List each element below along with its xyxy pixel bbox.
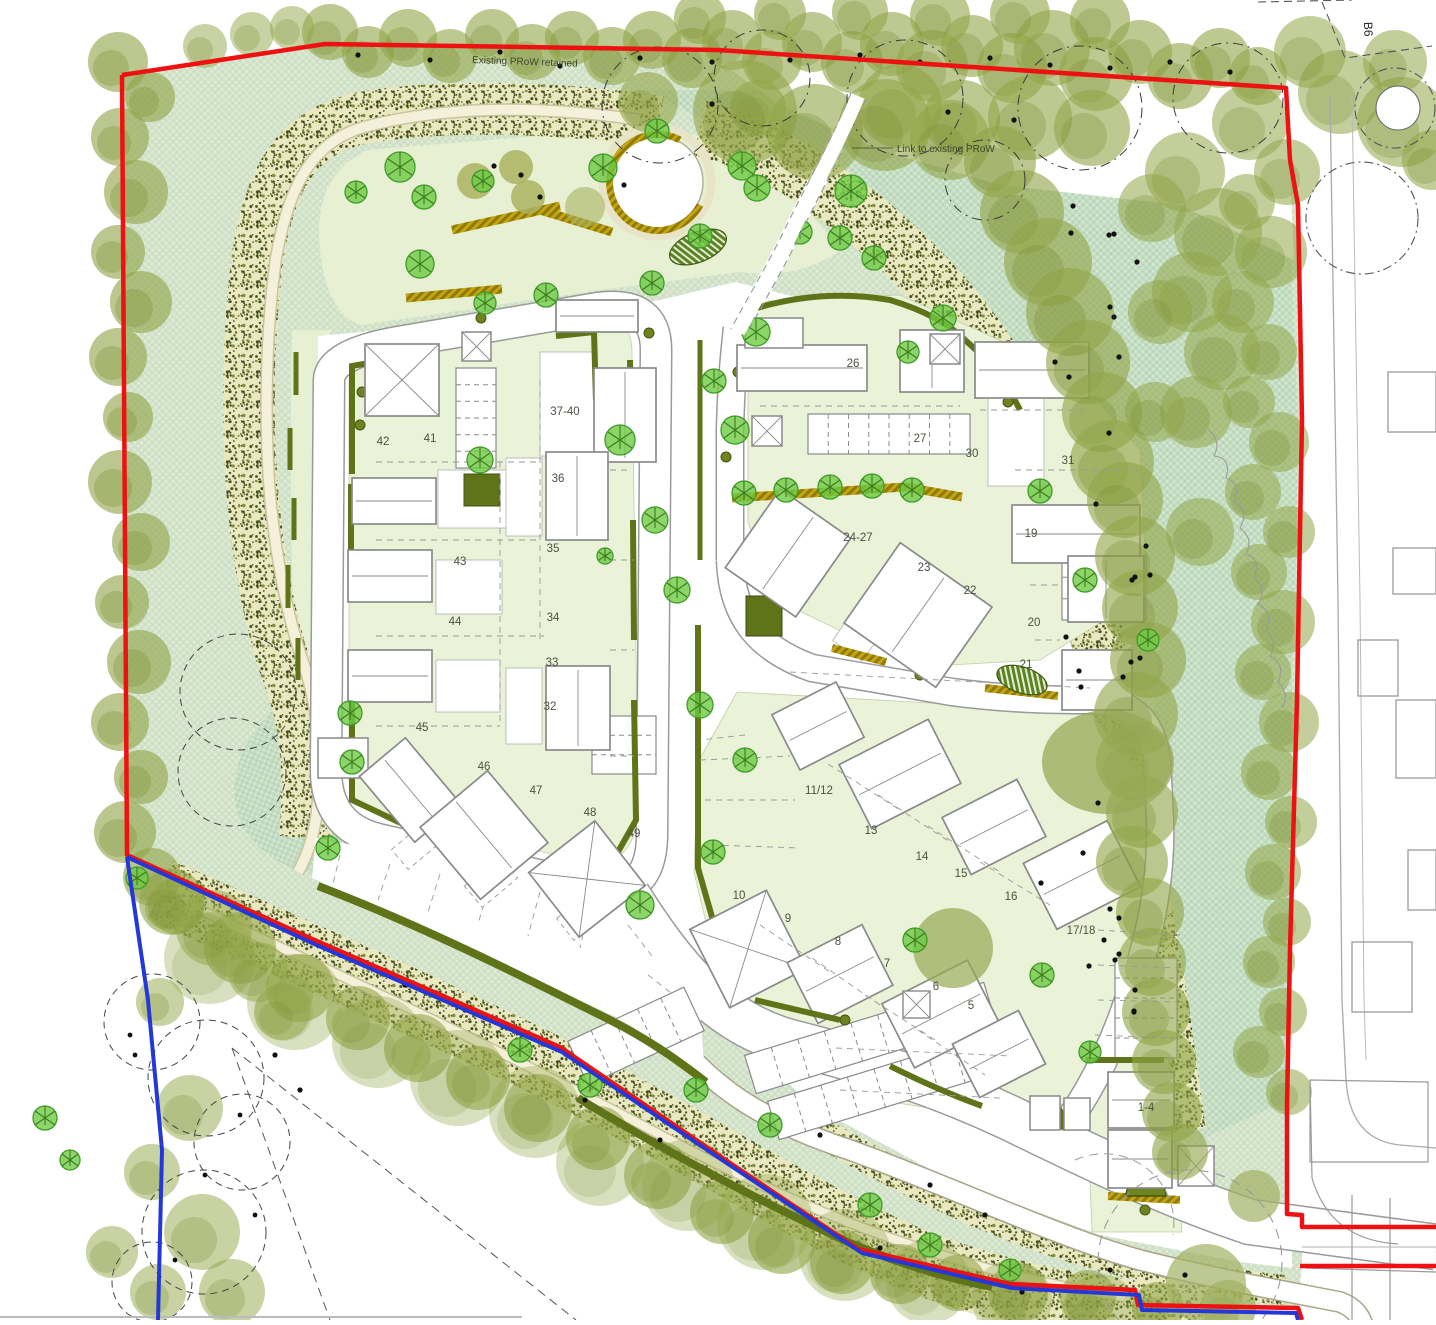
- svg-text:17/18: 17/18: [1067, 925, 1096, 937]
- svg-text:10: 10: [733, 890, 746, 902]
- svg-text:42: 42: [377, 436, 390, 448]
- svg-text:31: 31: [1062, 455, 1075, 467]
- svg-text:45: 45: [416, 722, 429, 734]
- svg-text:34: 34: [547, 612, 560, 624]
- svg-text:19: 19: [1025, 528, 1038, 540]
- svg-text:41: 41: [424, 433, 437, 445]
- svg-text:24-27: 24-27: [843, 532, 872, 544]
- svg-text:46: 46: [478, 761, 491, 773]
- svg-text:23: 23: [918, 562, 931, 574]
- svg-text:11/12: 11/12: [805, 785, 833, 797]
- svg-text:8: 8: [835, 936, 841, 948]
- svg-text:6: 6: [933, 981, 939, 993]
- svg-text:20: 20: [1028, 617, 1041, 629]
- svg-text:13: 13: [865, 825, 878, 837]
- svg-text:49: 49: [628, 828, 641, 840]
- svg-text:B6: B6: [1361, 22, 1376, 37]
- svg-text:21: 21: [1020, 659, 1033, 671]
- svg-text:47: 47: [530, 785, 543, 797]
- svg-text:27: 27: [914, 433, 927, 445]
- svg-text:7: 7: [884, 958, 890, 970]
- svg-text:33: 33: [546, 657, 559, 669]
- svg-text:37-40: 37-40: [550, 406, 579, 418]
- svg-text:30: 30: [966, 448, 979, 460]
- svg-text:16: 16: [1005, 891, 1018, 903]
- svg-text:32: 32: [544, 701, 557, 713]
- svg-text:Link to existing PRoW: Link to existing PRoW: [897, 144, 995, 155]
- svg-text:44: 44: [449, 616, 462, 628]
- svg-text:22: 22: [964, 585, 977, 597]
- svg-text:1-4: 1-4: [1138, 1102, 1155, 1114]
- svg-text:15: 15: [955, 868, 968, 880]
- svg-text:14: 14: [916, 851, 929, 863]
- svg-text:48: 48: [584, 807, 597, 819]
- svg-text:43: 43: [454, 556, 467, 568]
- svg-text:5: 5: [968, 1000, 974, 1012]
- svg-text:9: 9: [785, 913, 791, 925]
- svg-text:26: 26: [847, 358, 860, 370]
- svg-text:35: 35: [547, 543, 560, 555]
- svg-text:36: 36: [552, 473, 565, 485]
